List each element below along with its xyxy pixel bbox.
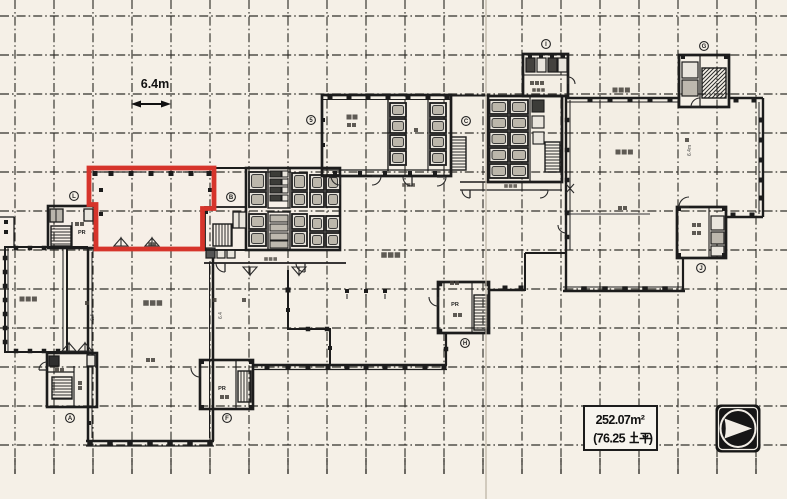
svg-text:): ) xyxy=(649,432,653,446)
svg-text:PR: PR xyxy=(451,302,459,308)
svg-text:J: J xyxy=(699,266,702,272)
svg-text:6.4: 6.4 xyxy=(218,312,224,319)
svg-text:L: L xyxy=(72,194,76,200)
svg-text:PR: PR xyxy=(218,386,226,392)
svg-text:F: F xyxy=(225,416,229,422)
svg-text:6.4: 6.4 xyxy=(90,314,96,321)
svg-text:G: G xyxy=(702,44,707,50)
svg-text:PR: PR xyxy=(78,230,86,236)
svg-text:6.4m: 6.4m xyxy=(687,145,693,156)
svg-text:B: B xyxy=(229,195,234,201)
svg-text:6.4m: 6.4m xyxy=(141,77,170,91)
svg-text:C: C xyxy=(464,119,469,125)
svg-text:A: A xyxy=(68,416,73,422)
svg-text:252.07m²: 252.07m² xyxy=(596,413,645,427)
svg-text:(76.25: (76.25 xyxy=(593,432,625,446)
svg-text:H: H xyxy=(463,341,467,347)
